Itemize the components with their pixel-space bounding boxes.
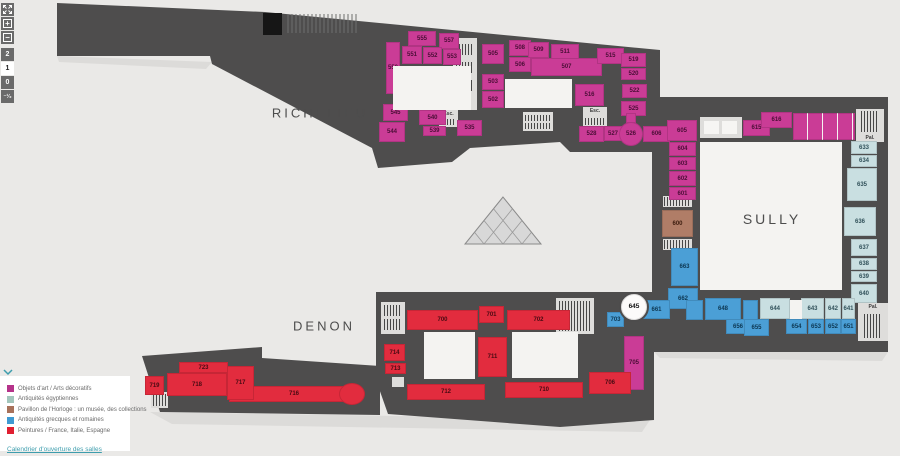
- room-651[interactable]: 651: [841, 319, 856, 334]
- room-551[interactable]: 551: [402, 46, 422, 64]
- room-503[interactable]: 503: [482, 74, 504, 90]
- room-700[interactable]: 700: [407, 310, 478, 330]
- room-644[interactable]: 644: [760, 298, 790, 319]
- louvre-map: Esc.Esc.Pal.Pal. 55055555755155255350550…: [0, 0, 900, 451]
- room-507[interactable]: 507: [531, 58, 602, 76]
- room-606[interactable]: 606: [643, 126, 670, 142]
- room-604[interactable]: 604: [669, 142, 696, 156]
- room-520[interactable]: 520: [621, 68, 646, 80]
- floor-button-1[interactable]: 1: [1, 62, 14, 75]
- legend-item: Objets d'art / Arts décoratifs: [7, 385, 130, 392]
- pyramid-icon: [465, 197, 541, 244]
- fullscreen-icon: [3, 5, 12, 14]
- stairs-icon: [861, 111, 879, 132]
- stairs-icon: [585, 118, 605, 125]
- wing-label-denon: DENON: [293, 319, 355, 334]
- room-526[interactable]: 526: [619, 122, 643, 146]
- room-719[interactable]: 719: [145, 376, 164, 395]
- legend-item: Antiquités égyptiennes: [7, 396, 130, 403]
- stairs-icon: [864, 314, 882, 338]
- room-602[interactable]: 602: [669, 171, 696, 186]
- minus-icon: −: [3, 33, 12, 42]
- room-522[interactable]: 522: [622, 84, 647, 98]
- legend-label: Antiquités grecques et romaines: [18, 417, 104, 423]
- map-block: [793, 113, 855, 140]
- room-515[interactable]: 515: [597, 48, 624, 64]
- room-516[interactable]: 516: [575, 84, 604, 106]
- stairs-icon: [525, 115, 551, 121]
- legend-collapse-button[interactable]: [2, 364, 14, 374]
- map-block: [424, 332, 475, 379]
- legend-item: Antiquités grecques et romaines: [7, 417, 130, 424]
- room-701[interactable]: 701: [479, 306, 504, 323]
- room-648[interactable]: 648: [705, 298, 741, 320]
- map-block: [743, 300, 758, 320]
- room-706[interactable]: 706: [589, 372, 631, 394]
- room-643[interactable]: 643: [801, 298, 824, 319]
- room-605[interactable]: 605: [667, 120, 697, 141]
- plus-icon: +: [3, 19, 12, 28]
- room-502[interactable]: 502: [482, 91, 504, 108]
- escalator-block: Esc.: [583, 107, 607, 127]
- room-635[interactable]: 635: [847, 168, 877, 201]
- stairs-icon: [525, 123, 551, 129]
- fullscreen-button[interactable]: [1, 3, 14, 16]
- zoom-in-button[interactable]: +: [1, 17, 14, 30]
- stairs-block: [700, 117, 742, 138]
- legend-label: Antiquités égyptiennes: [18, 396, 78, 402]
- service-room: [704, 121, 719, 134]
- room-553[interactable]: 553: [443, 49, 461, 65]
- map-block: [393, 66, 471, 110]
- room-633[interactable]: 633: [851, 141, 877, 154]
- stairs-block: [392, 377, 404, 387]
- room-528[interactable]: 528: [579, 126, 604, 142]
- stairs-icon: [384, 319, 402, 330]
- map-block: [686, 300, 703, 320]
- opening-calendar-link[interactable]: Calendrier d'ouverture des salles: [7, 446, 102, 453]
- room-636[interactable]: 636: [844, 207, 876, 236]
- room-506[interactable]: 506: [509, 57, 531, 72]
- stairs-icon: [586, 301, 592, 331]
- legend-item: Pavillon de l'Horloge : un musée, des co…: [7, 406, 130, 413]
- room-544[interactable]: 544: [379, 122, 405, 142]
- zoom-out-button[interactable]: −: [1, 31, 14, 44]
- room-712[interactable]: 712: [407, 384, 485, 400]
- room-702[interactable]: 702: [507, 310, 570, 330]
- room-663[interactable]: 663: [671, 248, 698, 286]
- stairs-label: Pal.: [858, 304, 888, 310]
- room-655[interactable]: 655: [744, 319, 769, 336]
- room-638[interactable]: 638: [851, 258, 877, 270]
- room-645[interactable]: 645: [619, 292, 649, 322]
- room-652[interactable]: 652: [825, 319, 841, 334]
- wing-label-richelieu: RICHELIEU: [272, 106, 368, 121]
- map-block: [505, 79, 572, 108]
- legend-item: Peintures / France, Italie, Espagne: [7, 427, 130, 434]
- legend-color-swatch: [7, 427, 14, 434]
- legend-label: Objets d'art / Arts décoratifs: [18, 386, 92, 392]
- palier-stairs: Pal.: [856, 109, 884, 142]
- room-603[interactable]: 603: [669, 157, 696, 170]
- room-717[interactable]: 717: [227, 366, 254, 400]
- room-654[interactable]: 654: [786, 319, 807, 334]
- room-713[interactable]: 713: [385, 363, 406, 374]
- room-600[interactable]: 600: [662, 210, 693, 237]
- legend-color-swatch: [7, 396, 14, 403]
- palier-stairs: Pal.: [858, 303, 888, 341]
- legend-color-swatch: [7, 385, 14, 392]
- room-552[interactable]: 552: [423, 47, 442, 64]
- floor-button-minus-half[interactable]: ⁻¹⁄₂: [1, 90, 14, 103]
- room-642[interactable]: 642: [825, 298, 841, 319]
- room-714[interactable]: 714: [384, 344, 405, 361]
- room-711[interactable]: 711: [478, 337, 507, 377]
- stairs-icon: [577, 301, 584, 331]
- room-555[interactable]: 555: [408, 31, 436, 46]
- map-block: [512, 332, 578, 378]
- legend-label: Peintures / France, Italie, Espagne: [18, 428, 110, 434]
- room-637[interactable]: 637: [851, 239, 877, 256]
- room-641[interactable]: 641: [842, 298, 855, 319]
- map-block: [790, 300, 802, 319]
- room-634[interactable]: 634: [851, 155, 877, 167]
- wing-label-sully: SULLY: [743, 211, 801, 227]
- floor-button-0[interactable]: 0: [1, 76, 14, 89]
- map-block: [339, 383, 365, 405]
- service-room: [722, 121, 737, 134]
- room-505[interactable]: 505: [482, 44, 504, 64]
- room-639[interactable]: 639: [851, 271, 877, 282]
- room-519[interactable]: 519: [621, 53, 646, 67]
- room-509[interactable]: 509: [528, 42, 549, 58]
- room-723[interactable]: 723: [179, 362, 228, 373]
- room-535[interactable]: 535: [457, 120, 482, 136]
- map-controls: + − 210⁻¹⁄₂: [1, 3, 15, 104]
- room-653[interactable]: 653: [808, 319, 824, 334]
- legend-color-swatch: [7, 417, 14, 424]
- room-616[interactable]: 616: [761, 112, 792, 128]
- legend-color-swatch: [7, 406, 14, 413]
- stairs-label: Esc.: [583, 108, 607, 114]
- floor-button-2[interactable]: 2: [1, 48, 14, 61]
- stairs-icon: [153, 394, 166, 406]
- room-710[interactable]: 710: [505, 382, 583, 398]
- stairs-block: [523, 112, 553, 131]
- legend-panel: Objets d'art / Arts décoratifsAntiquités…: [0, 376, 130, 451]
- room-601[interactable]: 601: [669, 187, 696, 200]
- room-540[interactable]: 540: [419, 110, 446, 125]
- stairs-icon: [384, 305, 402, 316]
- room-539[interactable]: 539: [423, 126, 446, 136]
- stairs-block: [381, 302, 405, 334]
- room-718[interactable]: 718: [167, 373, 227, 396]
- room-557[interactable]: 557: [439, 33, 459, 49]
- legend-label: Pavillon de l'Horloge : un musée, des co…: [18, 407, 147, 413]
